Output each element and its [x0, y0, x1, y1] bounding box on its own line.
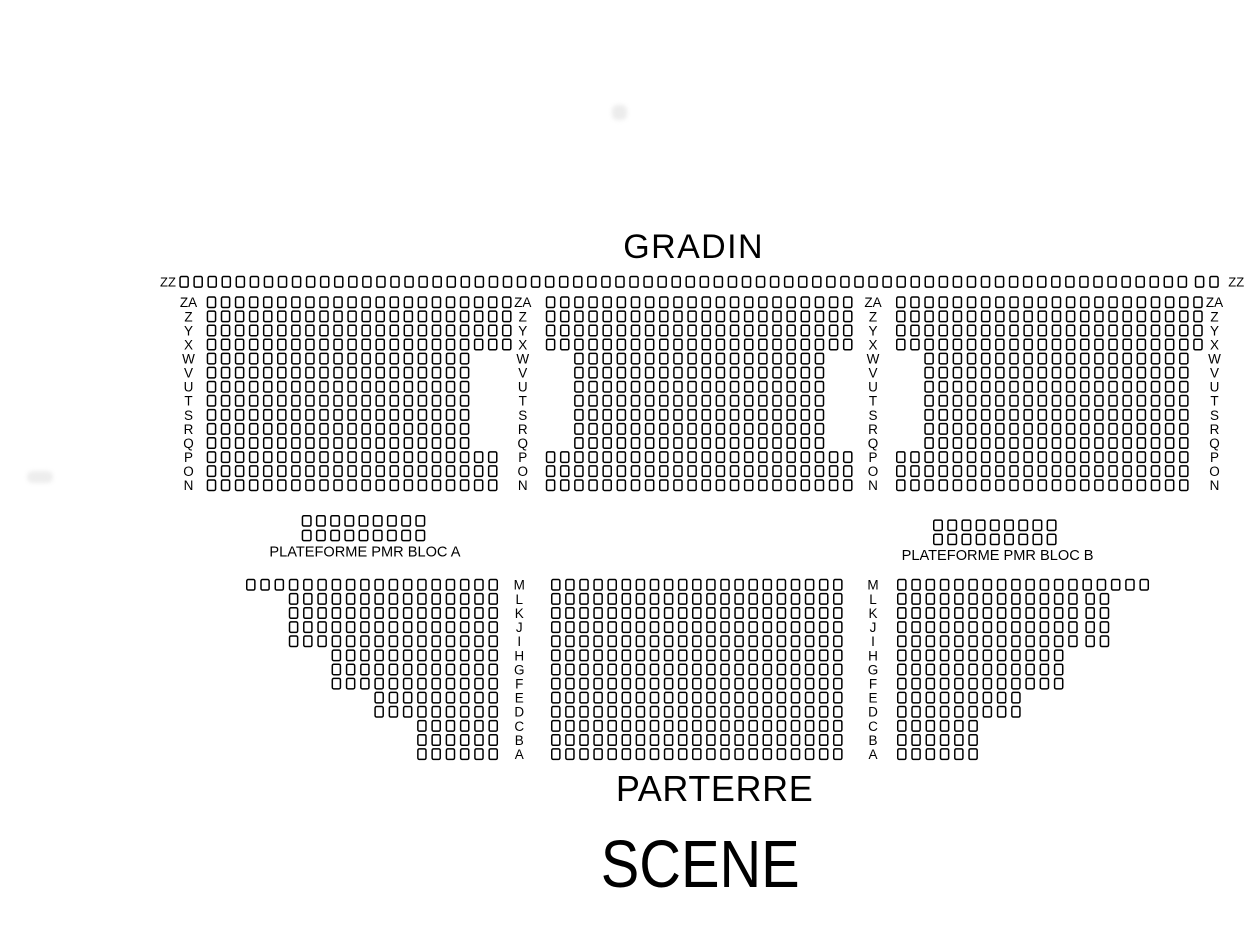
svg-text:ZA: ZA	[864, 295, 881, 310]
svg-text:X: X	[868, 337, 877, 352]
svg-text:V: V	[868, 366, 877, 381]
svg-text:L: L	[516, 592, 524, 607]
svg-text:S: S	[868, 408, 877, 423]
svg-text:B: B	[868, 733, 877, 748]
svg-text:Y: Y	[518, 323, 527, 338]
svg-text:E: E	[515, 691, 524, 706]
svg-text:F: F	[869, 676, 877, 691]
svg-text:V: V	[1210, 366, 1219, 381]
svg-text:A: A	[515, 747, 524, 762]
svg-text:H: H	[868, 648, 878, 663]
svg-text:K: K	[868, 606, 877, 621]
svg-text:J: J	[516, 620, 523, 635]
svg-text:W: W	[867, 351, 880, 366]
svg-text:S: S	[1210, 408, 1219, 423]
svg-text:N: N	[868, 478, 878, 493]
svg-text:D: D	[868, 705, 878, 720]
svg-text:D: D	[514, 705, 524, 720]
svg-text:M: M	[514, 578, 525, 593]
svg-text:W: W	[182, 351, 195, 366]
svg-text:R: R	[184, 422, 194, 437]
svg-text:ZZ: ZZ	[160, 275, 176, 290]
svg-text:O: O	[1209, 464, 1220, 479]
svg-text:X: X	[1210, 337, 1219, 352]
svg-text:N: N	[184, 478, 194, 493]
svg-text:P: P	[868, 450, 877, 465]
svg-text:U: U	[518, 380, 528, 395]
svg-text:ZZ: ZZ	[1228, 275, 1244, 290]
svg-text:V: V	[184, 366, 193, 381]
svg-text:S: S	[184, 408, 193, 423]
svg-text:F: F	[515, 676, 523, 691]
svg-text:T: T	[184, 394, 192, 409]
svg-text:G: G	[514, 662, 525, 677]
svg-text:I: I	[871, 634, 875, 649]
svg-text:M: M	[867, 578, 878, 593]
svg-text:Q: Q	[518, 436, 529, 451]
svg-text:O: O	[518, 464, 529, 479]
svg-text:PLATEFORME PMR BLOC B: PLATEFORME PMR BLOC B	[902, 548, 1094, 564]
svg-text:O: O	[183, 464, 194, 479]
svg-text:J: J	[870, 620, 877, 635]
svg-text:C: C	[514, 719, 524, 734]
svg-text:B: B	[515, 733, 524, 748]
svg-text:P: P	[518, 450, 527, 465]
svg-text:N: N	[1210, 478, 1220, 493]
svg-text:L: L	[869, 592, 877, 607]
svg-text:W: W	[516, 351, 529, 366]
svg-text:E: E	[868, 691, 877, 706]
svg-text:U: U	[1210, 380, 1220, 395]
svg-text:H: H	[514, 648, 524, 663]
svg-text:R: R	[518, 422, 528, 437]
svg-text:O: O	[868, 464, 879, 479]
svg-text:K: K	[515, 606, 524, 621]
svg-text:R: R	[1210, 422, 1220, 437]
svg-text:ZA: ZA	[180, 295, 197, 310]
svg-text:S: S	[518, 408, 527, 423]
svg-text:P: P	[184, 450, 193, 465]
svg-text:V: V	[518, 366, 527, 381]
svg-text:I: I	[517, 634, 521, 649]
svg-text:Q: Q	[1209, 436, 1220, 451]
svg-text:SCENE: SCENE	[601, 827, 800, 902]
svg-text:PLATEFORME PMR BLOC A: PLATEFORME PMR BLOC A	[269, 544, 460, 560]
svg-text:W: W	[1208, 351, 1221, 366]
svg-text:Y: Y	[1210, 323, 1219, 338]
svg-text:X: X	[518, 337, 527, 352]
svg-text:R: R	[868, 422, 878, 437]
svg-text:Z: Z	[184, 309, 192, 324]
svg-text:Z: Z	[1210, 309, 1218, 324]
svg-text:U: U	[184, 380, 194, 395]
svg-text:Y: Y	[868, 323, 877, 338]
svg-text:P: P	[1210, 450, 1219, 465]
svg-text:ZA: ZA	[1206, 295, 1223, 310]
svg-text:PARTERRE: PARTERRE	[616, 768, 814, 809]
svg-text:U: U	[868, 380, 878, 395]
svg-text:T: T	[1210, 394, 1218, 409]
svg-text:T: T	[869, 394, 877, 409]
svg-text:ZA: ZA	[514, 295, 531, 310]
svg-text:Q: Q	[868, 436, 879, 451]
svg-text:C: C	[868, 719, 878, 734]
svg-text:Q: Q	[183, 436, 194, 451]
svg-text:A: A	[868, 747, 877, 762]
svg-text:N: N	[518, 478, 528, 493]
svg-text:X: X	[184, 337, 193, 352]
svg-text:Z: Z	[869, 309, 877, 324]
svg-text:T: T	[519, 394, 527, 409]
svg-text:G: G	[868, 662, 879, 677]
svg-text:Z: Z	[519, 309, 527, 324]
svg-text:Y: Y	[184, 323, 193, 338]
svg-text:GRADIN: GRADIN	[623, 228, 764, 266]
